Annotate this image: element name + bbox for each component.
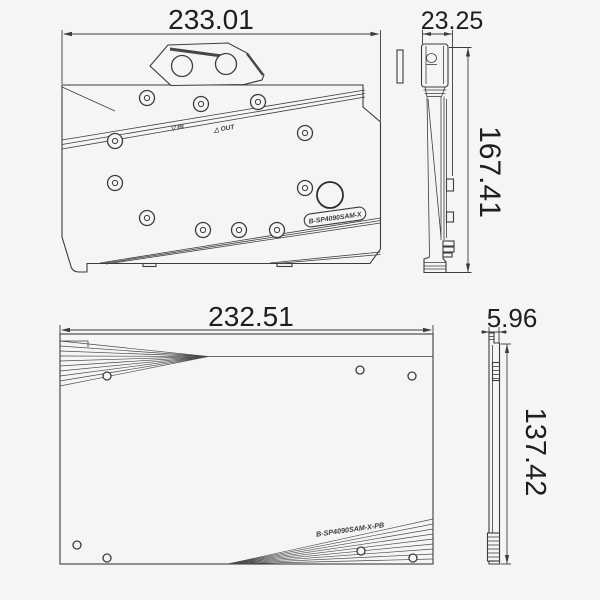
front-view: 233.01	[62, 4, 381, 272]
backplate-view: 232.51	[60, 301, 433, 564]
waterblock-technical-drawing: 233.01	[0, 0, 600, 600]
dimension-backplate-width: 232.51	[60, 301, 433, 336]
backplate-height-value: 137.42	[519, 408, 551, 497]
backplate-side-view: 5.96	[481, 303, 551, 564]
front-terminal-block	[150, 43, 264, 86]
side-height-value: 167.41	[473, 126, 506, 218]
side-bracket-foot	[424, 254, 446, 273]
side-view: 23.25	[397, 7, 506, 273]
front-plug-circle	[317, 182, 343, 208]
dimension-backplate-height: 137.42	[501, 344, 552, 564]
side-terminal-block	[397, 44, 448, 87]
side-width-value: 23.25	[421, 7, 484, 35]
front-bottom-tab	[143, 264, 156, 267]
strip-top-detail	[493, 363, 500, 381]
drawing-svg: 233.01	[0, 0, 600, 600]
strip-bottom-detail	[488, 533, 500, 561]
backplate-thickness-value: 5.96	[487, 303, 538, 333]
front-bottom-tab	[277, 264, 292, 267]
terminal-port-out	[216, 54, 237, 75]
backplate-width-value: 232.51	[208, 301, 294, 332]
side-profile	[424, 87, 455, 273]
front-width-value: 233.01	[168, 4, 254, 35]
terminal-port-in	[172, 56, 193, 77]
